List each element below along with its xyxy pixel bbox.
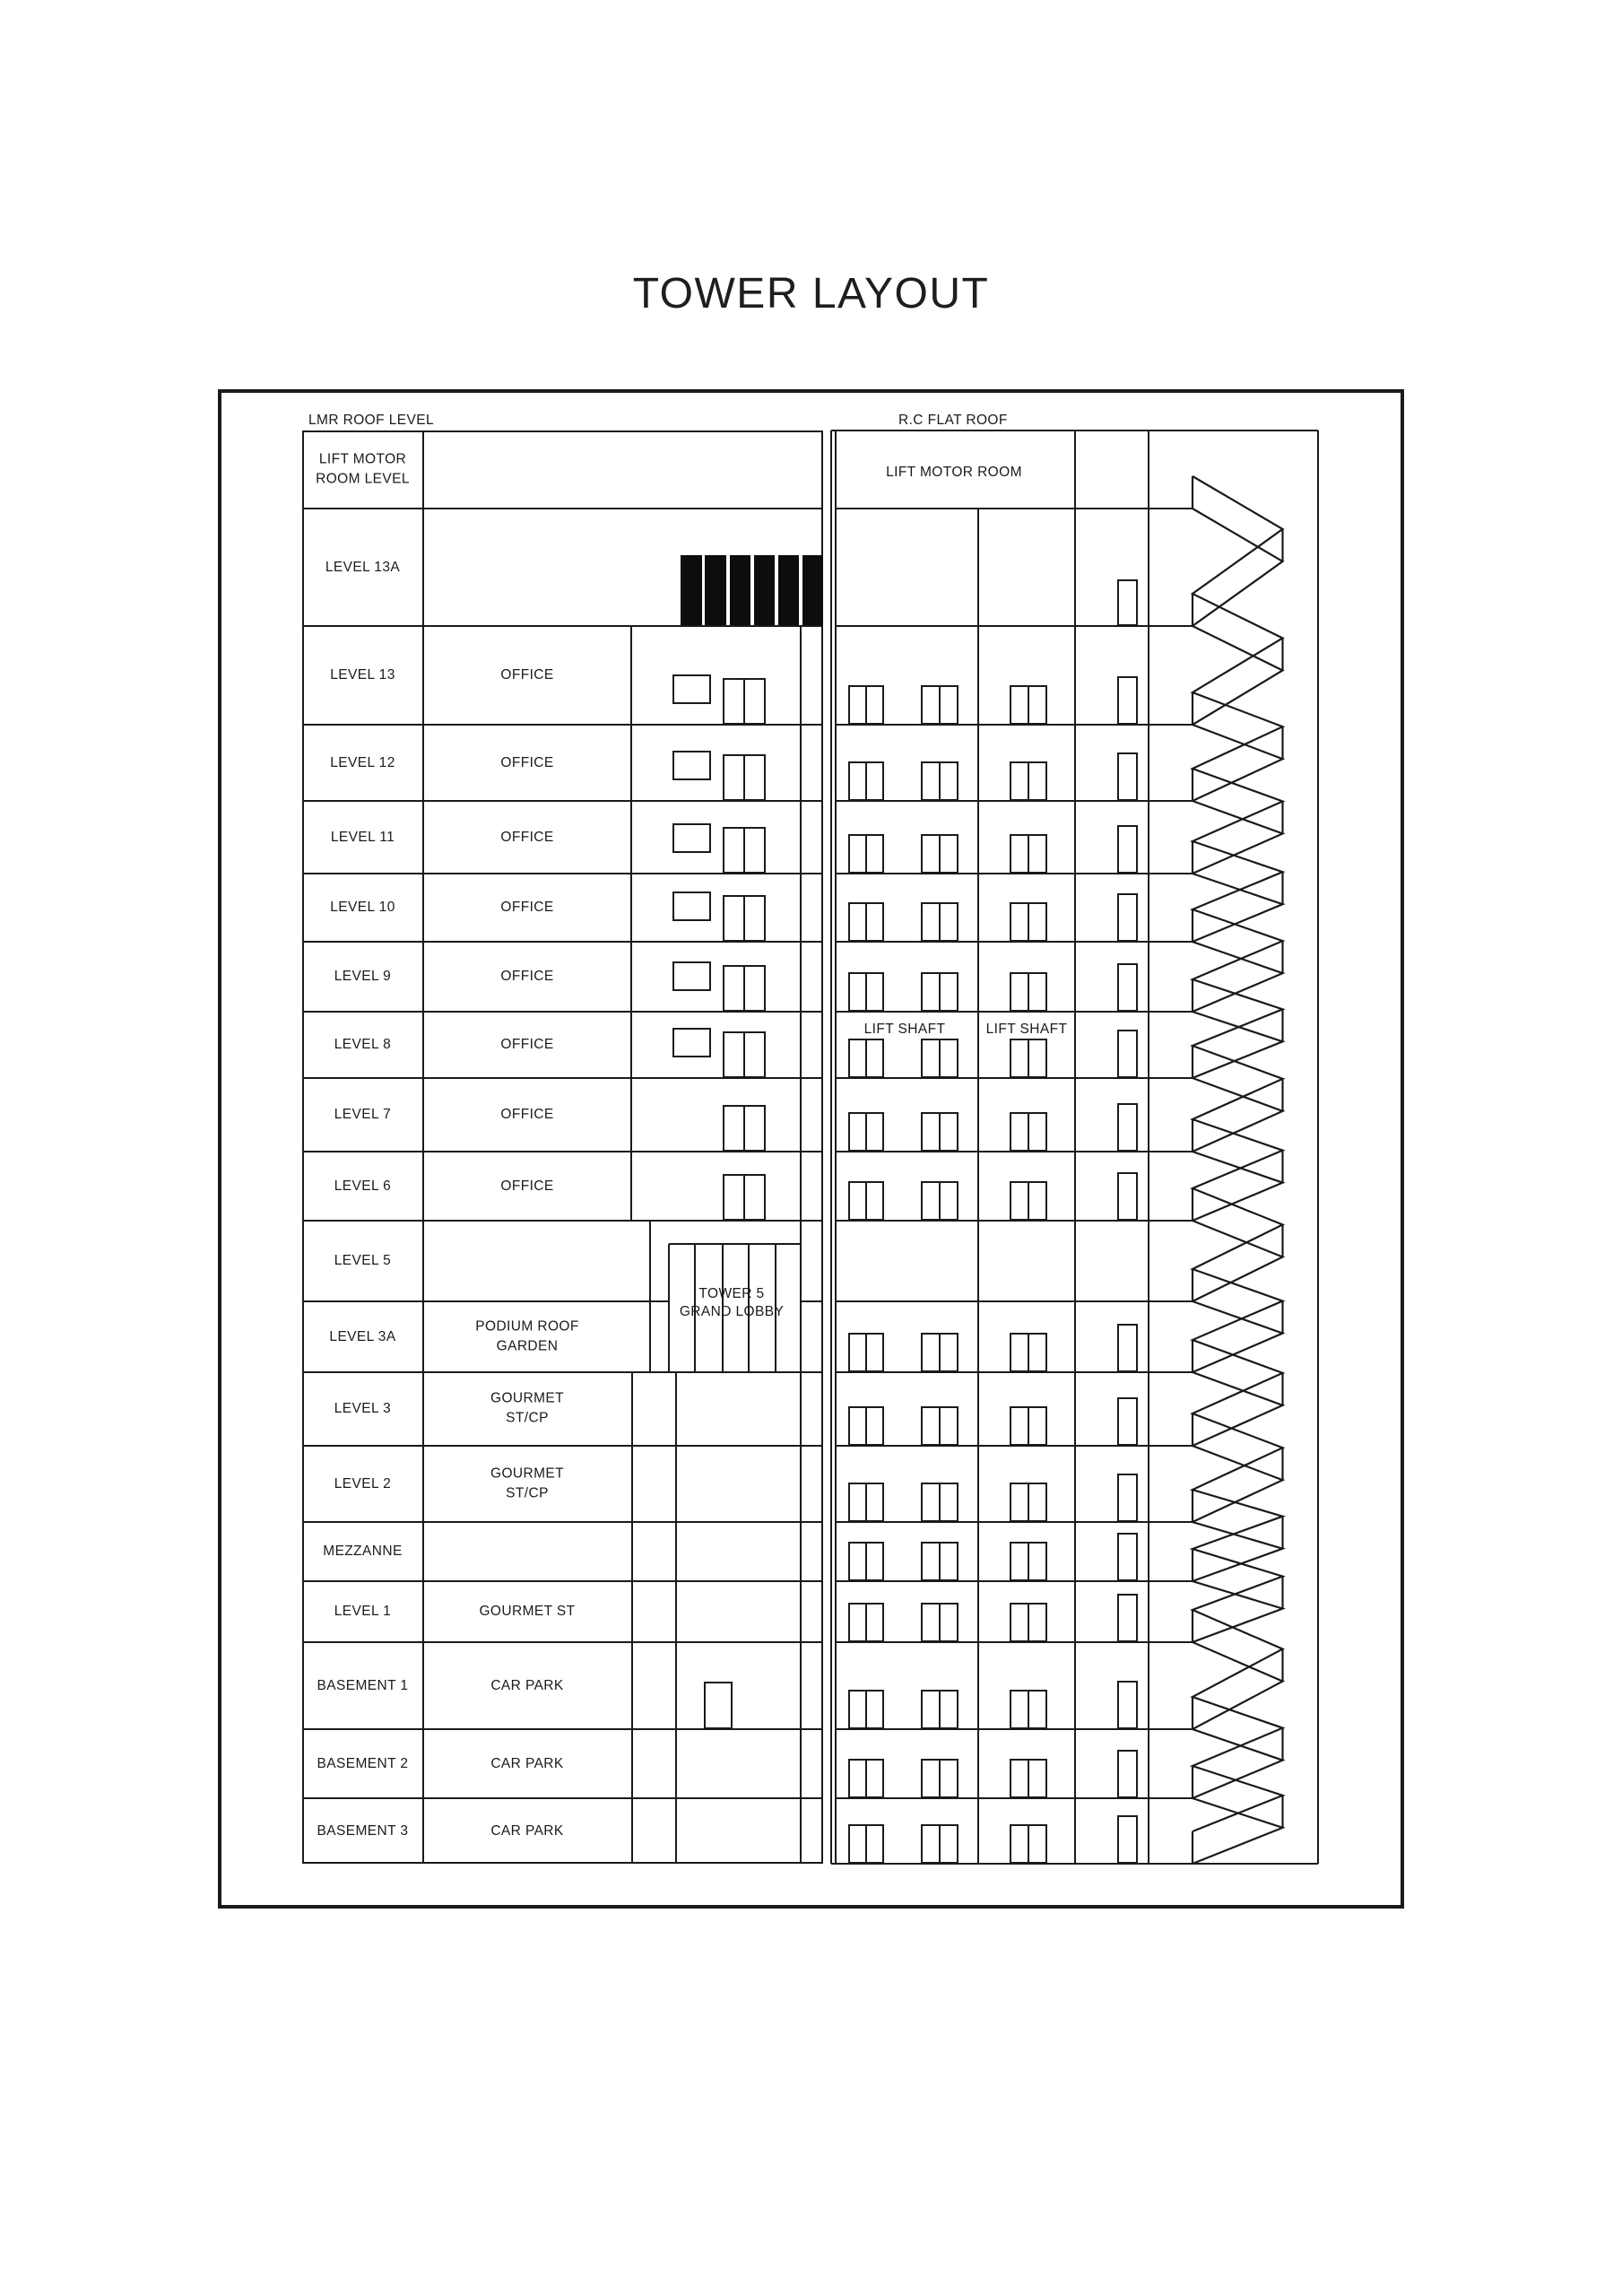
stair-landing-line — [1149, 1521, 1193, 1523]
door-leaf-divider — [939, 902, 941, 942]
stair-landing-line — [1149, 1580, 1193, 1582]
floor-use-label: OFFICE — [469, 967, 585, 987]
page-title: TOWER LAYOUT — [0, 269, 1622, 318]
door-leaf-divider — [939, 1542, 941, 1581]
core-divider — [1148, 430, 1149, 1864]
door-leaf-divider — [1028, 1039, 1029, 1078]
service-door — [1117, 1533, 1138, 1581]
row-line — [302, 1728, 823, 1730]
window-square — [672, 751, 711, 780]
window-square — [672, 1028, 711, 1057]
row-line — [302, 1521, 823, 1523]
lobby-column — [694, 1244, 696, 1372]
service-door — [1117, 1397, 1138, 1446]
floor-level-label: LEVEL 5 — [305, 1251, 421, 1271]
core-floor-line — [836, 625, 1149, 627]
floor-use-label: OFFICE — [469, 1035, 585, 1055]
door-leaf-divider — [865, 1483, 867, 1522]
stair-landing-line — [1149, 625, 1193, 627]
floor-level-label: LEVEL 9 — [305, 967, 421, 987]
door-leaf-divider — [743, 678, 745, 725]
floor-level-label: LEVEL 6 — [305, 1176, 421, 1196]
service-door — [1117, 1681, 1138, 1729]
floor-use-label: OFFICE — [469, 1105, 585, 1125]
stair-landing-line — [1149, 508, 1193, 509]
floor-level-label: LEVEL 7 — [305, 1105, 421, 1125]
stair-landing-line — [1149, 1641, 1193, 1643]
door-leaf-divider — [865, 761, 867, 801]
floor-use-label: CAR PARK — [469, 1753, 585, 1773]
label-column-divider — [422, 430, 424, 1864]
door-leaf-divider — [865, 1112, 867, 1152]
floor-use-label: GOURMET ST/CP — [469, 1464, 585, 1504]
floor-use-label: OFFICE — [469, 752, 585, 772]
core-right-wall — [1317, 430, 1320, 1864]
door-leaf-divider — [865, 972, 867, 1012]
floor-use-label: CAR PARK — [469, 1675, 585, 1695]
lift-shaft-divider — [977, 509, 979, 1864]
tower-layout-canvas: TOWER LAYOUT LMR ROOF LEVEL R.C FLAT ROO… — [0, 0, 1622, 2296]
floor-use-label: OFFICE — [469, 898, 585, 918]
door-leaf-divider — [939, 1181, 941, 1221]
lower-narrow-divider — [631, 1372, 633, 1864]
core-left-wall — [830, 430, 832, 1864]
door-leaf-divider — [865, 1824, 867, 1864]
door-leaf-divider — [939, 1483, 941, 1522]
floor-level-label: LEVEL 3A — [305, 1326, 421, 1346]
stair-landing-line — [1149, 800, 1193, 802]
core-left-wall-inner — [835, 430, 837, 1864]
stair-landing-line — [1149, 1445, 1193, 1447]
floor-level-label: LEVEL 11 — [305, 827, 421, 847]
door-leaf-divider — [939, 1690, 941, 1729]
door-leaf-divider — [939, 761, 941, 801]
door-leaf-divider — [1028, 685, 1029, 725]
row-line — [302, 508, 823, 509]
lobby-outer-wall — [649, 1221, 651, 1372]
louvre-bar — [754, 555, 776, 625]
window-square — [672, 674, 711, 704]
door-leaf-divider — [939, 1333, 941, 1372]
service-door — [1117, 893, 1138, 942]
door-leaf-divider — [743, 754, 745, 801]
service-door — [1117, 579, 1138, 626]
door-leaf-divider — [939, 972, 941, 1012]
service-door — [1117, 1030, 1138, 1078]
service-door — [1117, 676, 1138, 725]
floor-use-label: PODIUM ROOF GARDEN — [469, 1317, 585, 1357]
stair-landing-line — [1149, 1151, 1193, 1152]
door-leaf-divider — [865, 1603, 867, 1642]
floor-level-label: LEVEL 2 — [305, 1474, 421, 1493]
floor-level-label: BASEMENT 3 — [305, 1821, 421, 1840]
door-leaf-divider — [939, 834, 941, 874]
door-leaf-divider — [865, 1039, 867, 1078]
stair-landing-line — [1149, 724, 1193, 726]
door-leaf-divider — [1028, 1181, 1029, 1221]
service-door — [1117, 1474, 1138, 1522]
row-line — [302, 1300, 669, 1302]
stair-landing-line — [1149, 1300, 1193, 1302]
lobby-column — [748, 1244, 750, 1372]
door-leaf-divider — [939, 1039, 941, 1078]
lobby-column — [722, 1244, 724, 1372]
louvre-bar — [778, 555, 800, 625]
floor-level-label: LEVEL 8 — [305, 1035, 421, 1055]
door-leaf-divider — [1028, 902, 1029, 942]
door-leaf-divider — [939, 685, 941, 725]
floor-level-label: LEVEL 13 — [305, 665, 421, 685]
floor-level-label: LEVEL 12 — [305, 752, 421, 772]
floor-use-label: OFFICE — [469, 827, 585, 847]
door-leaf-divider — [865, 902, 867, 942]
stair-landing-line — [1149, 1220, 1193, 1222]
door-leaf-divider — [865, 834, 867, 874]
door-leaf-divider — [743, 827, 745, 874]
door-leaf-divider — [1028, 1824, 1029, 1864]
window-square — [672, 961, 711, 991]
service-door — [1117, 1324, 1138, 1372]
row-line — [302, 625, 823, 627]
door-leaf-divider — [865, 1406, 867, 1446]
floor-use-label: OFFICE — [469, 665, 585, 685]
door-leaf-divider — [1028, 1333, 1029, 1372]
floor-use-label: CAR PARK — [469, 1821, 585, 1840]
service-door — [1117, 1594, 1138, 1642]
door-leaf-divider — [1028, 761, 1029, 801]
row-line — [302, 1445, 823, 1447]
door-leaf-divider — [743, 1105, 745, 1152]
floor-level-label: LEVEL 1 — [305, 1602, 421, 1622]
floor-use-label: OFFICE — [469, 1176, 585, 1196]
row-line — [302, 1797, 823, 1799]
door-leaf-divider — [1028, 834, 1029, 874]
louvre-bar — [730, 555, 751, 625]
door-leaf-divider — [865, 1542, 867, 1581]
stair-landing-line — [1149, 1728, 1193, 1730]
door-leaf-divider — [1028, 972, 1029, 1012]
stair-landing-line — [1149, 1797, 1193, 1799]
door-leaf-divider — [743, 895, 745, 942]
door-leaf-divider — [865, 685, 867, 725]
floor-level-label: LEVEL 10 — [305, 898, 421, 918]
door-leaf-divider — [1028, 1690, 1029, 1729]
stair-landing-line — [1149, 1011, 1193, 1013]
louvre-bar — [705, 555, 726, 625]
stair-landing-line — [1149, 873, 1193, 874]
door-leaf-divider — [1028, 1759, 1029, 1798]
door-leaf-divider — [865, 1690, 867, 1729]
service-door — [1117, 1815, 1138, 1864]
stair-landing-line — [1149, 941, 1193, 943]
door-leaf-divider — [939, 1824, 941, 1864]
window-square — [672, 823, 711, 853]
window-column-divider — [800, 626, 802, 1864]
door-leaf-divider — [1028, 1603, 1029, 1642]
service-door — [1117, 1103, 1138, 1152]
louvre-bar — [681, 555, 702, 625]
floor-level-label: LEVEL 13A — [305, 557, 421, 577]
carpark-door — [704, 1682, 733, 1729]
row-line — [302, 1641, 823, 1643]
floor-level-label: MEZZANNE — [305, 1542, 421, 1561]
window-square — [672, 891, 711, 921]
floor-use-label: GOURMET ST — [469, 1602, 585, 1622]
lobby-inner-wall — [668, 1244, 670, 1372]
door-leaf-divider — [1028, 1483, 1029, 1522]
lobby-column — [775, 1244, 776, 1372]
row-line — [302, 1371, 823, 1373]
floor-level-label: LEVEL 3 — [305, 1399, 421, 1419]
core-floor-line — [836, 1300, 1149, 1302]
louvre-bar — [802, 555, 824, 625]
service-door — [1117, 825, 1138, 874]
service-door — [1117, 1172, 1138, 1221]
door-leaf-divider — [1028, 1406, 1029, 1446]
floor-use-label: GOURMET ST/CP — [469, 1389, 585, 1430]
core-divider — [1074, 430, 1076, 1864]
office-column-divider — [630, 626, 632, 1221]
door-leaf-divider — [939, 1603, 941, 1642]
door-leaf-divider — [939, 1759, 941, 1798]
core-floor-line — [836, 508, 1149, 509]
lobby-roof-line — [669, 1243, 801, 1245]
service-door — [1117, 752, 1138, 801]
door-leaf-divider — [865, 1181, 867, 1221]
lower-narrow-divider — [675, 1372, 677, 1864]
door-leaf-divider — [743, 1031, 745, 1078]
row-line — [302, 1580, 823, 1582]
door-leaf-divider — [743, 965, 745, 1012]
stair-landing-line — [1149, 1077, 1193, 1079]
door-leaf-divider — [865, 1333, 867, 1372]
door-leaf-divider — [865, 1759, 867, 1798]
floor-level-label: LIFT MOTOR ROOM LEVEL — [305, 449, 421, 490]
stair-landing-line — [1149, 1371, 1193, 1373]
floor-level-label: BASEMENT 1 — [305, 1675, 421, 1695]
door-leaf-divider — [1028, 1112, 1029, 1152]
service-door — [1117, 963, 1138, 1012]
door-leaf-divider — [939, 1112, 941, 1152]
floor-level-label: BASEMENT 2 — [305, 1753, 421, 1773]
door-leaf-divider — [1028, 1542, 1029, 1581]
row-line — [801, 1300, 823, 1302]
door-leaf-divider — [743, 1174, 745, 1221]
service-door — [1117, 1750, 1138, 1798]
door-leaf-divider — [939, 1406, 941, 1446]
